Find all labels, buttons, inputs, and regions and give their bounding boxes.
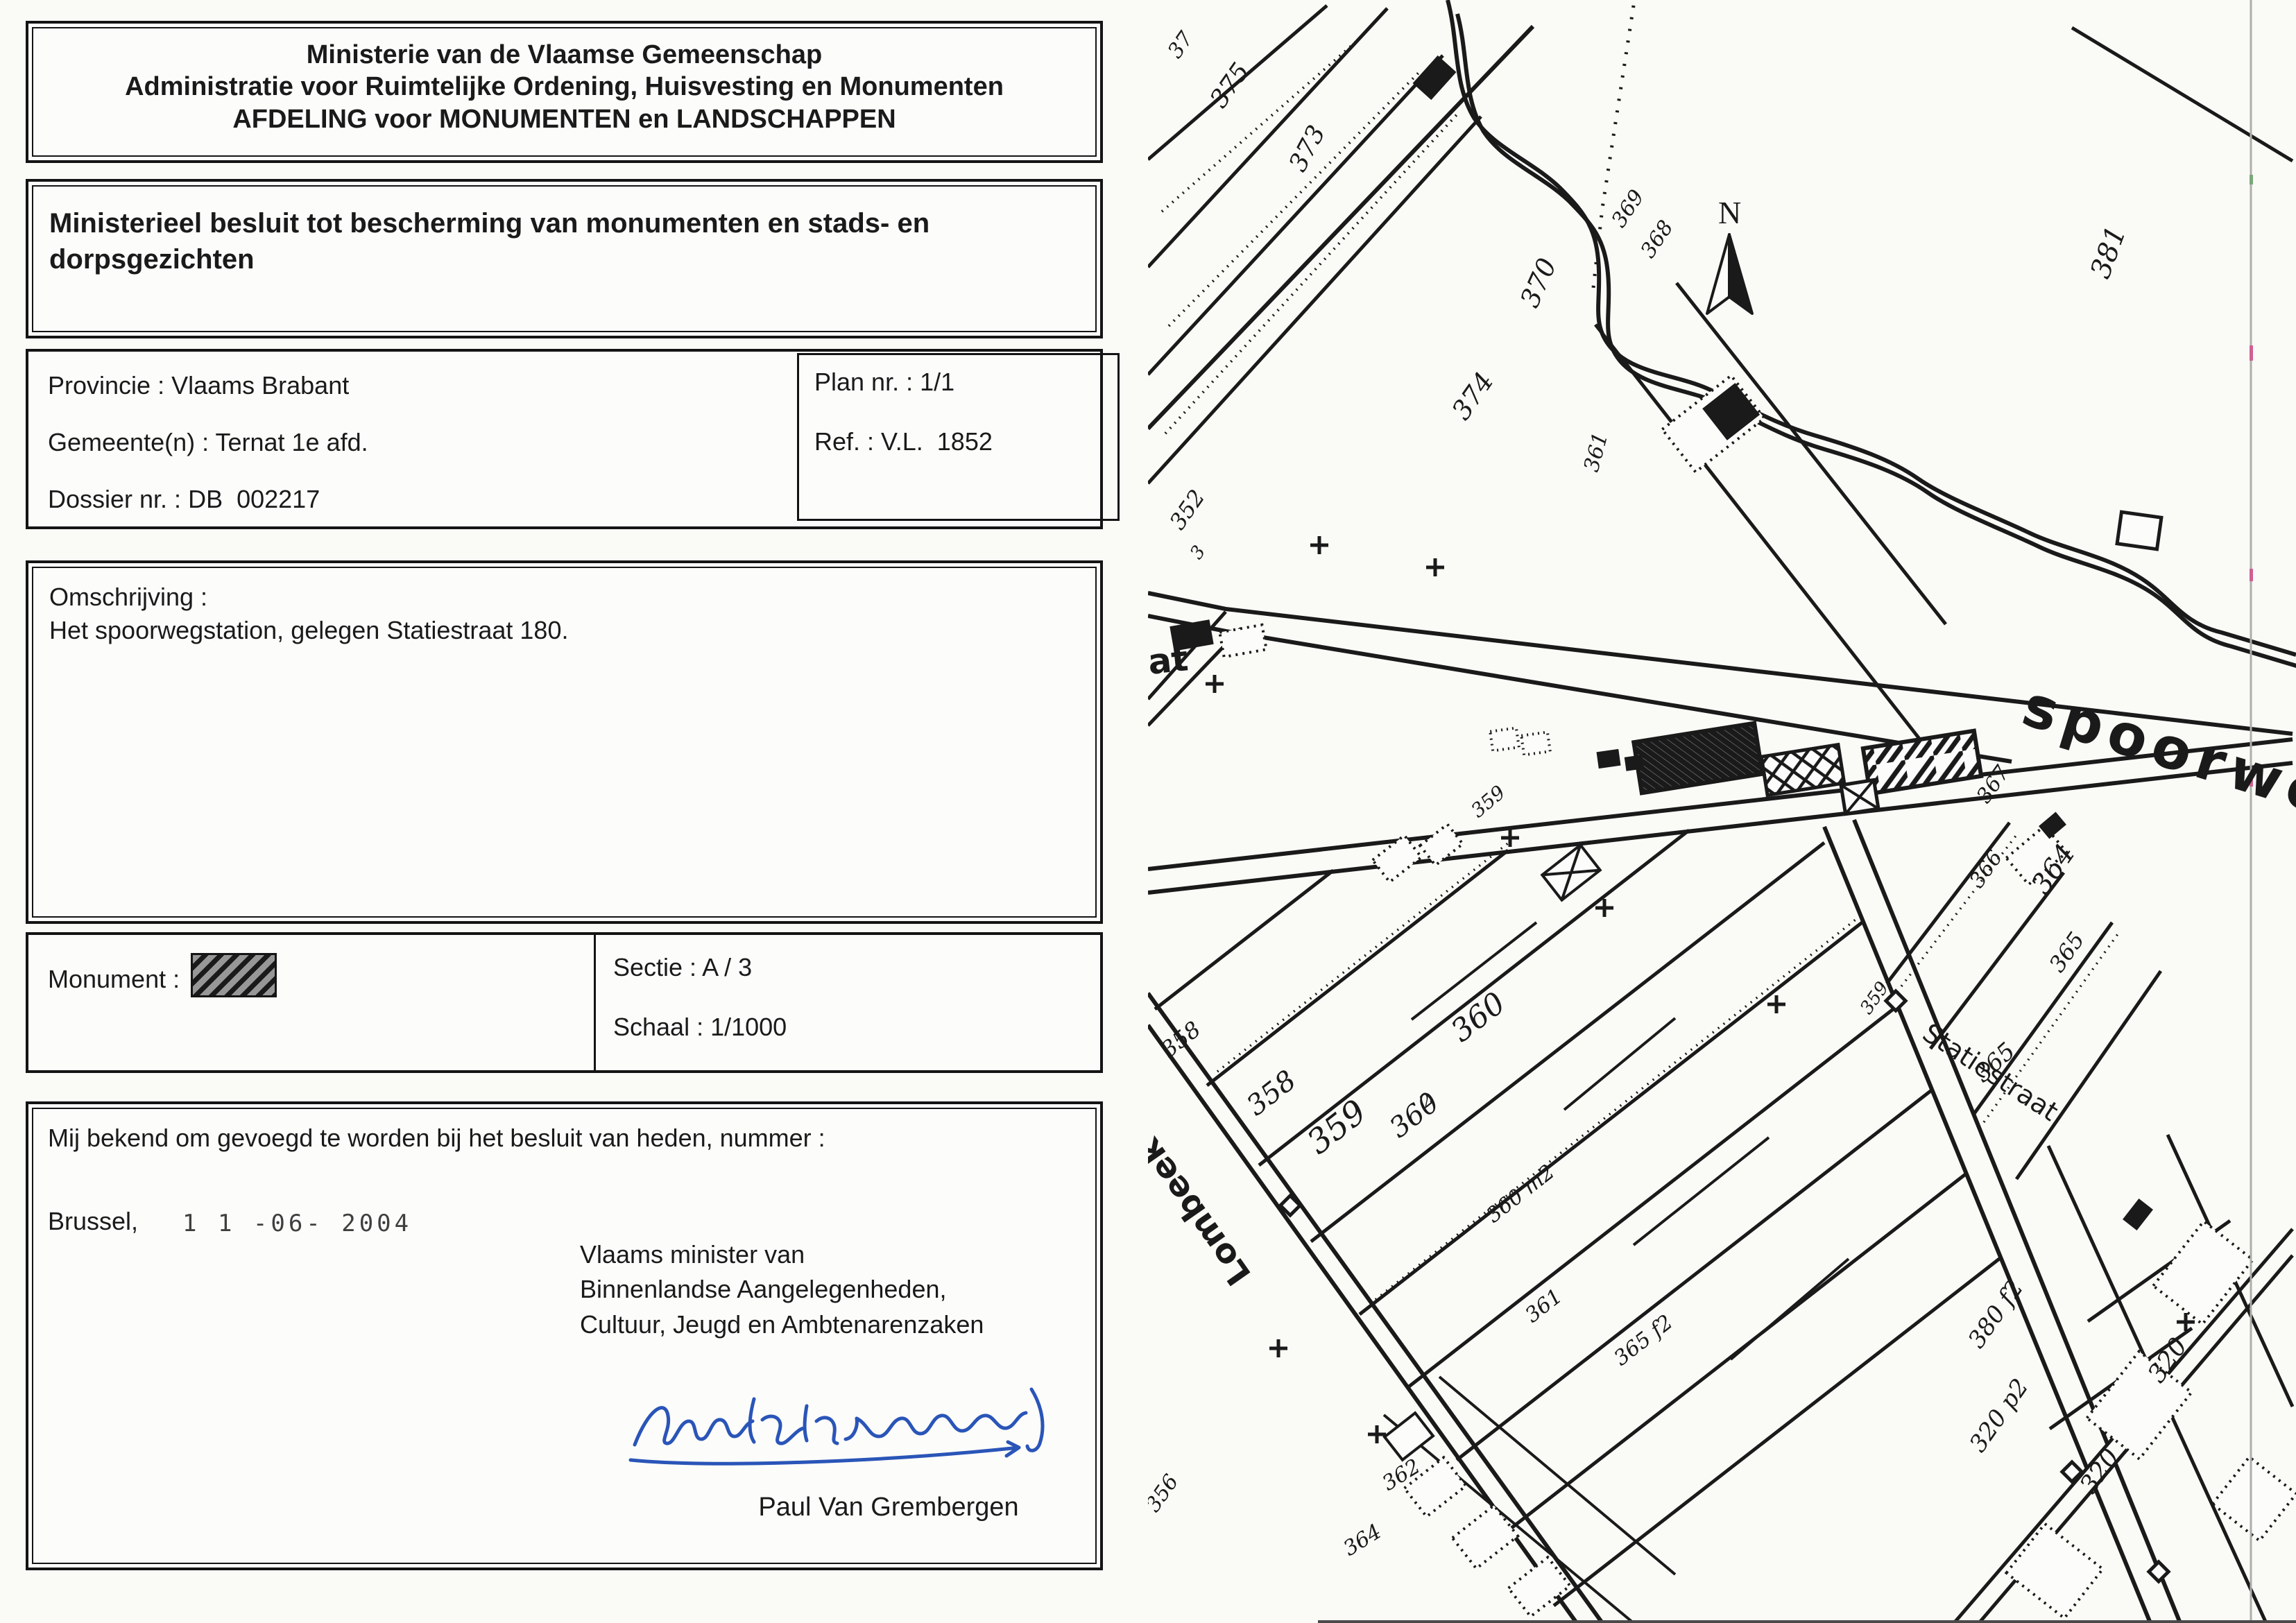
closing-statement: Mij bekend om gevoegd te worden bij het …: [48, 1124, 825, 1153]
schaal-row: Schaal : 1/1000: [613, 1013, 787, 1042]
map-label: 365: [2044, 927, 2089, 977]
map-label: 370: [1514, 254, 1563, 312]
schaal-label: Schaal :: [613, 1013, 703, 1041]
plan-label: Plan nr. :: [814, 368, 913, 396]
schaal-value: 1/1000: [710, 1013, 787, 1041]
map-label: 365 f2: [1609, 1310, 1677, 1371]
dotted-boundary: [1593, 6, 1634, 288]
minister-line2: Binnenlandse Aangelegenheden,: [580, 1272, 984, 1307]
dossier-value: DB 002217: [188, 485, 320, 513]
ref-label: Ref. :: [814, 427, 874, 456]
stream: [1448, 0, 2296, 669]
page-edge: [2250, 0, 2253, 1623]
map-label: N: [1718, 195, 1741, 230]
ref-row: Ref. : V.L. 1852: [814, 427, 993, 456]
map-label: 361: [1520, 1284, 1567, 1328]
plan-ref-cell: Plan nr. : 1/1 Ref. : V.L. 1852: [797, 353, 1120, 521]
scanned-decree-page: Ministerie van de Vlaamse Gemeenschap Ad…: [0, 0, 2296, 1623]
decree-title: Ministerieel besluit tot bescherming van…: [49, 205, 1006, 277]
map-label: 37: [1163, 26, 1199, 62]
minister-line3: Cultuur, Jeugd en Ambtenarenzaken: [580, 1307, 984, 1342]
map-label: 352: [1164, 485, 1210, 535]
minister-line1: Vlaams minister van: [580, 1237, 984, 1272]
building-dotted: [1490, 728, 1519, 750]
map-label: 368: [1636, 216, 1679, 262]
building: [1596, 749, 1620, 768]
station-buildings: [1634, 723, 1981, 814]
cadastral-map-panel: spoorwegStatiestraatNatLombeek3737537337…: [1148, 0, 2296, 1623]
building-crossed: [1542, 845, 1600, 900]
map-label: 361: [1579, 430, 1613, 474]
map-label: 3: [1186, 542, 1210, 563]
description-text: Het spoorwegstation, gelegen Statiestraa…: [49, 616, 568, 645]
province-label: Provincie :: [48, 371, 164, 400]
scan-bottom-edge: [1318, 1620, 2296, 1623]
province-value: Vlaams Brabant: [171, 371, 349, 400]
monument-label: Monument :: [48, 965, 180, 993]
map-label: at: [1148, 638, 1190, 682]
signatory-name: Paul Van Grembergen: [694, 1493, 1083, 1522]
legend-divider: [594, 935, 596, 1070]
ministry-header-text: Ministerie van de Vlaamse Gemeenschap Ad…: [28, 39, 1100, 135]
building: [2117, 512, 2161, 549]
plan-row: Plan nr. : 1/1: [814, 368, 954, 397]
plan-value: 1/1: [920, 368, 954, 396]
map-label: 320 p2: [1964, 1374, 2034, 1458]
closing-box: Mij bekend om gevoegd te worden bij het …: [26, 1101, 1103, 1570]
map-label: 359: [1300, 1092, 1374, 1162]
ref-value: V.L. 1852: [881, 427, 993, 456]
sectie-row: Sectie : A / 3: [613, 953, 752, 982]
info-box: Provincie : Vlaams Brabant Gemeente(n) :…: [26, 349, 1103, 529]
map-label: 374: [1446, 367, 1500, 426]
building-dotted: [1521, 732, 1550, 755]
map-label: 373: [1284, 121, 1331, 176]
north-arrow-icon: [1707, 234, 1752, 314]
decree-title-box: Ministerieel besluit tot bescherming van…: [26, 179, 1103, 338]
building-dotted: [2007, 1524, 2103, 1618]
date-stamp: 1 1 -06- 2004: [182, 1210, 412, 1237]
dossier-label: Dossier nr. :: [48, 485, 181, 513]
map-label: 380 f2: [1963, 1275, 2030, 1353]
building: [2123, 1199, 2153, 1230]
ministry-header-box: Ministerie van de Vlaamse Gemeenschap Ad…: [26, 21, 1103, 163]
cadastral-map: spoorwegStatiestraatNatLombeek3737537337…: [1148, 0, 2296, 1623]
station-small-cross-building: [1841, 780, 1878, 814]
monument-hatch-swatch: [191, 953, 277, 997]
map-label: 369: [1607, 185, 1650, 232]
monument-station-hatched: [1634, 723, 1762, 793]
map-label: 381: [2084, 222, 2132, 282]
map-label: 359: [1466, 781, 1509, 823]
municipality-value: Ternat 1e afd.: [215, 428, 368, 456]
province-row: Provincie : Vlaams Brabant: [48, 371, 349, 400]
description-label: Omschrijving :: [49, 583, 207, 612]
ministry-line1: Ministerie van de Vlaamse Gemeenschap: [28, 39, 1100, 71]
dossier-row: Dossier nr. : DB 002217: [48, 485, 320, 514]
building: [1413, 55, 1457, 100]
map-label: 360: [1384, 1087, 1445, 1144]
parcel-stipple-lines: [1162, 42, 1460, 433]
monument-legend-row: Monument :: [48, 953, 277, 997]
building-dotted: [2213, 1457, 2296, 1541]
municipality-label: Gemeente(n) :: [48, 428, 209, 456]
map-label: 356: [1148, 1470, 1183, 1517]
map-label: 364: [1339, 1520, 1386, 1561]
station-annex-lattice: [1761, 745, 1844, 796]
minister-title: Vlaams minister van Binnenlandse Aangele…: [580, 1237, 984, 1342]
building: [1625, 755, 1645, 771]
field-boundary-northeast: [2072, 28, 2293, 161]
sectie-value: A / 3: [702, 953, 752, 981]
map-label: 366: [1965, 846, 2008, 893]
closing-city: Brussel,: [48, 1207, 138, 1236]
meadow-boundaries: [1595, 283, 1946, 739]
description-box: Omschrijving : Het spoorwegstation, gele…: [26, 560, 1103, 924]
legend-box: Monument : Sectie : A / 3 Schaal : 1/100…: [26, 932, 1103, 1073]
ministry-line2: Administratie voor Ruimtelijke Ordening,…: [28, 71, 1100, 103]
ministry-line3: AFDELING voor MONUMENTEN en LANDSCHAPPEN: [28, 103, 1100, 135]
municipality-row: Gemeente(n) : Ternat 1e afd.: [48, 428, 368, 457]
map-label: 360: [1444, 986, 1512, 1049]
map-label: 358: [1241, 1065, 1302, 1122]
sectie-label: Sectie :: [613, 953, 696, 981]
map-label: 360 m2: [1482, 1160, 1559, 1228]
signature-scribble: [625, 1378, 1083, 1482]
